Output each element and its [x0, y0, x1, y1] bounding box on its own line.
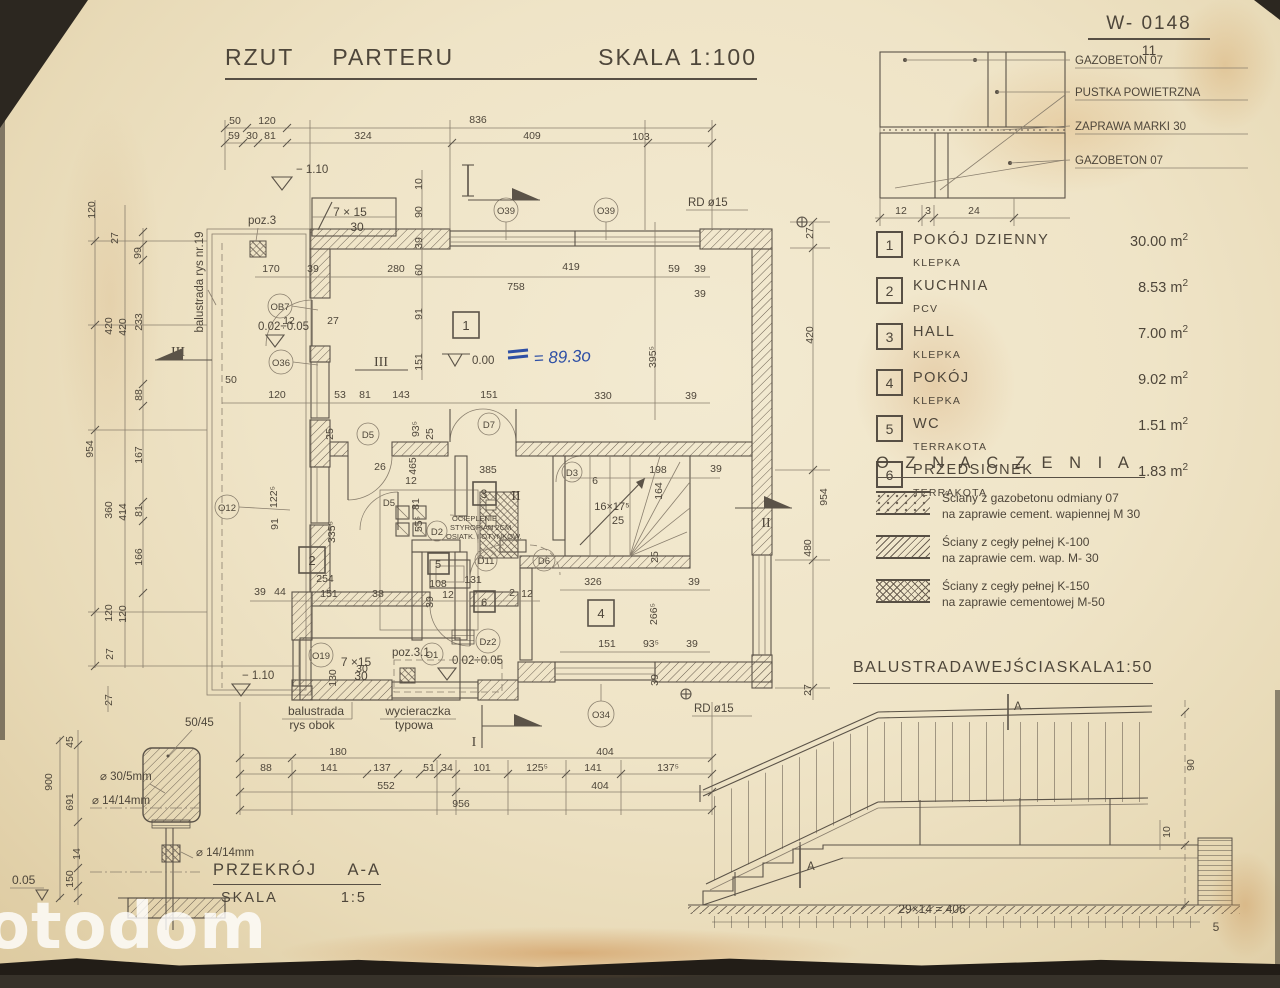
dim: 59 [668, 263, 680, 275]
dim: ⌀ 30/5mm [100, 771, 152, 783]
dim: 12 [405, 475, 417, 487]
dim: 81 [133, 505, 145, 517]
balustrade-drawing: 90 10 29×14 = 406 5 A A [688, 694, 1240, 934]
legend-text: na zaprawie cement. wapiennej M 30 [942, 507, 1140, 523]
dim: 51 [423, 762, 435, 774]
dim: 93⁵ [643, 638, 659, 650]
note-label: STYROPIAN 2CM [450, 523, 511, 532]
dim: 836 [469, 114, 487, 126]
section-label: I [472, 735, 477, 750]
room-name: WC [913, 416, 940, 432]
room-name: KUCHNIA [913, 278, 989, 294]
door-tag: D6 [538, 556, 550, 567]
dim: 420 [804, 326, 816, 344]
dim: 25 [324, 428, 336, 440]
material-label: ZAPRAWA MARKI 30 [1075, 121, 1186, 133]
room-number-box: 2 [876, 277, 903, 304]
legend-item: Ściany z cegły pełnej K-100na zaprawie c… [876, 535, 1196, 566]
stair-label: 30 [354, 669, 368, 683]
scan-edge [0, 120, 5, 740]
dim: ⌀ 14/14mm [92, 795, 150, 807]
table-row: 4POKÓJ KLEPKA 9.02 m2 [876, 369, 1194, 407]
legend-item: Ściany z cegły pełnej K-150na zaprawie c… [876, 579, 1196, 610]
title-word: PRZEKRÓJ [213, 861, 317, 880]
room-floor: KLEPKA [913, 257, 1194, 269]
dim: 143 [392, 389, 410, 401]
door-tag: D5 [362, 430, 374, 441]
dim: 6 [592, 475, 598, 487]
dim: 93⁵ [410, 421, 422, 437]
dim: 324 [354, 130, 372, 142]
handwritten-level: = 89.3o [533, 346, 591, 368]
dim: 25 [424, 428, 436, 440]
dim: 30 [246, 130, 258, 142]
dim: 552 [377, 780, 395, 792]
dim: 5 [1213, 920, 1220, 934]
dim: 409 [523, 130, 541, 142]
note-label: balustrada [288, 704, 344, 718]
dim: 151 [480, 389, 498, 401]
level-label: − 1.10 [242, 670, 274, 682]
room-number-box: 4 [876, 369, 903, 396]
level-label: − 1.10 [296, 164, 328, 176]
dim: 120 [103, 604, 115, 622]
section-label: A [1014, 701, 1022, 713]
stair-label: 7 ×15 [341, 655, 372, 669]
room-floor: PCV [913, 303, 1194, 315]
room-number: 4 [597, 606, 604, 621]
dim: 91 [269, 518, 281, 530]
dim: 120 [86, 201, 98, 219]
dim: 39 [694, 288, 706, 300]
doc-code: W- 0148 [1088, 13, 1210, 40]
dim: 404 [596, 746, 614, 758]
dim: 465 [407, 457, 419, 475]
dim: 167 [133, 446, 145, 464]
dim: 81 [264, 130, 276, 142]
door-tag: D2 [431, 527, 443, 538]
dim: 12 [521, 588, 533, 600]
dim: 266⁵ [648, 603, 660, 625]
dim: 39 [688, 576, 700, 588]
dim: 170 [262, 263, 280, 275]
level-label: 0.00 [472, 355, 494, 367]
note-label: poz.3.1 [392, 647, 430, 659]
dim: 335⁵ [326, 521, 338, 543]
title-scale: 1:5 [341, 890, 367, 906]
dim: 39 [413, 237, 425, 249]
legend-title: O Z N A C Z E N I A [876, 454, 1145, 478]
title-word: WEJŚCIA [975, 659, 1057, 677]
stair-label: 30 [350, 220, 364, 234]
room-floor: KLEPKA [913, 395, 1194, 407]
door-tag: D11 [478, 556, 495, 567]
title-scale: SKALA 1:100 [598, 44, 757, 71]
dim: 137 [373, 762, 391, 774]
hatch-swatch-brick-k150 [876, 579, 930, 603]
dim: 90 [1185, 759, 1197, 771]
level-label: 0.02÷0.05 [452, 655, 503, 667]
dim: 137⁵ [657, 762, 679, 774]
dim: 34 [441, 762, 453, 774]
title-word: RZUT [225, 44, 294, 71]
dim: 27 [804, 227, 816, 239]
drain-tag: RD ø15 [688, 197, 728, 209]
section-mark: A-A [347, 861, 381, 880]
dim: 14 [71, 848, 83, 860]
room-number: 2 [308, 553, 315, 568]
doc-sheet-number: 11 [1088, 40, 1210, 58]
room-area: 30.00 m2 [1130, 232, 1188, 250]
post-poz3 [250, 241, 266, 257]
door-tag: D3 [566, 468, 578, 479]
legend-text: na zaprawie cem. wap. M- 30 [942, 551, 1099, 567]
balustrade-title: BALUSTRADA WEJŚCIA SKALA 1:50 [853, 659, 1153, 684]
window-tag: O12 [218, 503, 236, 514]
room-number-box: 3 [876, 323, 903, 350]
dim: ⌀ 14/14mm [196, 847, 254, 859]
door-tag: D5 [383, 498, 395, 509]
dim: 27 [104, 648, 116, 660]
dim: 39 [254, 586, 266, 598]
dim: 198 [649, 464, 667, 476]
dim: 27 [802, 684, 814, 696]
dim: 38 [372, 588, 384, 600]
dim: 10 [1161, 826, 1173, 838]
title-scale: 1:50 [1116, 659, 1153, 677]
dim: 39 [710, 463, 722, 475]
legend-text: Ściany z gazobetonu odmiany 07 [942, 491, 1140, 507]
legend-text: Ściany z cegły pełnej K-150 [942, 579, 1105, 595]
section-label: II [511, 489, 521, 504]
stair-label: 25 [612, 515, 624, 527]
dim: 130 [327, 669, 339, 687]
dim: 151 [598, 638, 616, 650]
dim: 164 [653, 482, 665, 500]
room-number: 1 [462, 318, 469, 333]
stair-label: 7 × 15 [333, 205, 367, 219]
dim: 150 [64, 870, 76, 888]
document-reference: W- 0148 11 [1088, 13, 1210, 58]
window-tag: O39 [597, 206, 615, 217]
drain-tag: RD ø15 [694, 703, 734, 715]
dim: 39 [649, 674, 661, 686]
dim: 360 [103, 501, 115, 519]
window-tag: O19 [312, 651, 330, 662]
dim: 10 [413, 178, 425, 190]
dim: 39 [694, 263, 706, 275]
dim: 125⁵ [526, 762, 548, 774]
dim: 55⁵ [413, 516, 425, 532]
level-label: 0.05 [12, 873, 36, 887]
dim: 12 [442, 589, 454, 601]
room-area: 7.00 m2 [1138, 324, 1188, 342]
dim: 326 [584, 576, 602, 588]
stair-label: 16×17⁵ [594, 501, 629, 513]
note-label: rys obok [289, 718, 335, 732]
dim: 91 [413, 308, 425, 320]
window-tag: O34 [592, 710, 610, 721]
dim: 395⁵ [647, 346, 659, 368]
dim: 141 [584, 762, 602, 774]
window-tag: O36 [272, 358, 290, 369]
dim: 88 [260, 762, 272, 774]
dim-chain-right: 27 420 954 480 27 [802, 227, 830, 696]
room-area: 1.51 m2 [1138, 416, 1188, 434]
dim: 420 [117, 318, 129, 336]
dim: 954 [84, 440, 96, 458]
drawing-title: RZUT PARTERU SKALA 1:100 [225, 44, 757, 80]
dim: 59 [228, 130, 240, 142]
dim: 27 [327, 315, 339, 327]
dim: 81 [359, 389, 371, 401]
dim: 81 [410, 498, 422, 510]
dim: 2 [509, 587, 515, 599]
note-label: typowa [395, 718, 433, 732]
room-number: 6 [481, 597, 487, 609]
dim: 39 [686, 638, 698, 650]
dim: 27 [103, 694, 115, 706]
note-label: wycieraczka [384, 704, 451, 718]
dim: 233 [133, 313, 145, 331]
table-row: 1POKÓJ DZIENNY KLEPKA 30.00 m2 [876, 231, 1194, 269]
dim: 691 [64, 793, 76, 811]
level-label: 0.02÷0.05 [258, 321, 309, 333]
dim: 122⁵ [268, 486, 280, 508]
dim: 103 [632, 131, 650, 143]
kitchen-fixtures [380, 490, 478, 630]
dim: 60 [413, 264, 425, 276]
dim: 480 [802, 539, 814, 557]
dim: 120 [268, 389, 286, 401]
note-label: poz.3 [248, 215, 276, 227]
room-floor: TERRAKOTA [913, 441, 1194, 453]
dim: 39 [424, 596, 436, 608]
dim: 280 [387, 263, 405, 275]
room-number: 5 [435, 559, 441, 571]
floor-plan: 50 120 836 59 30 81 324 409 103 120 27 9… [84, 114, 830, 815]
table-row: 5WC TERRAKOTA 1.51 m2 [876, 415, 1194, 453]
dim: 50 [225, 374, 237, 386]
table-row: 2KUCHNIA PCV 8.53 m2 [876, 277, 1194, 315]
room-number-box: 1 [876, 231, 903, 258]
opening-tags: O39 O39 OB7 O36 O12 O19 O1 O34 Dz2 D5 D5… [215, 197, 807, 727]
room-area: 8.53 m2 [1138, 278, 1188, 296]
dim: 90 [413, 206, 425, 218]
dim: 45 [64, 736, 76, 748]
title-word: BALUSTRADA [853, 659, 975, 677]
dim: 254 [316, 573, 334, 585]
room-name: POKÓJ DZIENNY [913, 232, 1049, 248]
title-word: PARTERU [332, 44, 454, 71]
dim: 25 [649, 551, 661, 563]
dim: 88 [133, 389, 145, 401]
dim: 954 [818, 488, 830, 506]
room-number-box: 5 [876, 415, 903, 442]
dim: 758 [507, 281, 525, 293]
dim: 99 [132, 247, 144, 259]
dim-chain-top: 50 120 836 59 30 81 324 409 103 [228, 114, 650, 143]
dim: 3 [925, 205, 931, 217]
dim: 151 [320, 588, 338, 600]
dim-chain-bottom: 180 404 88 141 137 51 34 101 125⁵ 141 13… [260, 746, 679, 810]
room-name: POKÓJ [913, 370, 970, 386]
title-word: SKALA [1057, 659, 1116, 677]
material-label: GAZOBETON 07 [1075, 155, 1163, 167]
dim: 900 [43, 773, 55, 791]
section-label: II [761, 516, 771, 531]
room-number: 3 [481, 487, 488, 501]
room-area: 9.02 m2 [1138, 370, 1188, 388]
dim: 151 [413, 353, 425, 371]
legend-text: na zaprawie cementowej M-50 [942, 595, 1105, 611]
dim: 50/45 [185, 717, 214, 729]
note-label: OCIEPLENIE [452, 514, 497, 523]
dim: 404 [591, 780, 609, 792]
room-floor: KLEPKA [913, 349, 1194, 361]
dim: 414 [117, 503, 129, 521]
dim: 53 [334, 389, 346, 401]
material-label: PUSTKA POWIETRZNA [1075, 87, 1201, 99]
hatch-swatch-brick-k100 [876, 535, 930, 559]
dim: 101 [473, 762, 491, 774]
dim: 12 [895, 205, 907, 217]
dim: 27 [109, 232, 121, 244]
door-tag: Dz2 [480, 637, 497, 648]
dim: 419 [562, 261, 580, 273]
dim: 29×14 = 406 [898, 902, 966, 916]
dim: 141 [320, 762, 338, 774]
dim: 24 [968, 205, 980, 217]
legend-text: Ściany z cegły pełnej K-100 [942, 535, 1099, 551]
dim: 166 [133, 548, 145, 566]
dim: 420 [103, 317, 115, 335]
hatch-swatch-gazobeton [876, 491, 930, 515]
door-tag: D7 [483, 420, 495, 431]
dim: 44 [274, 586, 286, 598]
wall-detail: GAZOBETON 07 PUSTKA POWIETRZNA ZAPRAWA M… [875, 52, 1248, 226]
dim: 120 [258, 115, 276, 127]
dim: 131 [464, 574, 482, 586]
dim: 120 [117, 605, 129, 623]
dim: 330 [594, 390, 612, 402]
room-name: HALL [913, 324, 955, 340]
dim-chain-left: 120 27 99 420 420 233 88 954 167 360 414… [84, 201, 145, 660]
dim: 180 [329, 746, 347, 758]
section-label: III [374, 355, 388, 370]
note-label: balustrada rys nr.19 [194, 231, 206, 332]
window-tag: O39 [497, 206, 515, 217]
interior-walls [312, 442, 752, 660]
dim: 39 [307, 263, 319, 275]
dim: 385 [479, 464, 497, 476]
window-tag: OB7 [270, 302, 289, 313]
note-label: OSIATK. I OTYNKOW. [446, 532, 522, 541]
dim: 50 [229, 115, 241, 127]
dim: 956 [452, 798, 470, 810]
dim: 26 [374, 461, 386, 473]
watermark: otodom [0, 890, 267, 964]
table-row: 3HALL KLEPKA 7.00 m2 [876, 323, 1194, 361]
legend-item: Ściany z gazobetonu odmiany 07na zaprawi… [876, 491, 1196, 522]
section-label: A [807, 861, 815, 873]
scan-edge [1275, 690, 1280, 975]
legend: O Z N A C Z E N I A Ściany z gazobetonu … [876, 454, 1196, 611]
dim: 39 [685, 390, 697, 402]
